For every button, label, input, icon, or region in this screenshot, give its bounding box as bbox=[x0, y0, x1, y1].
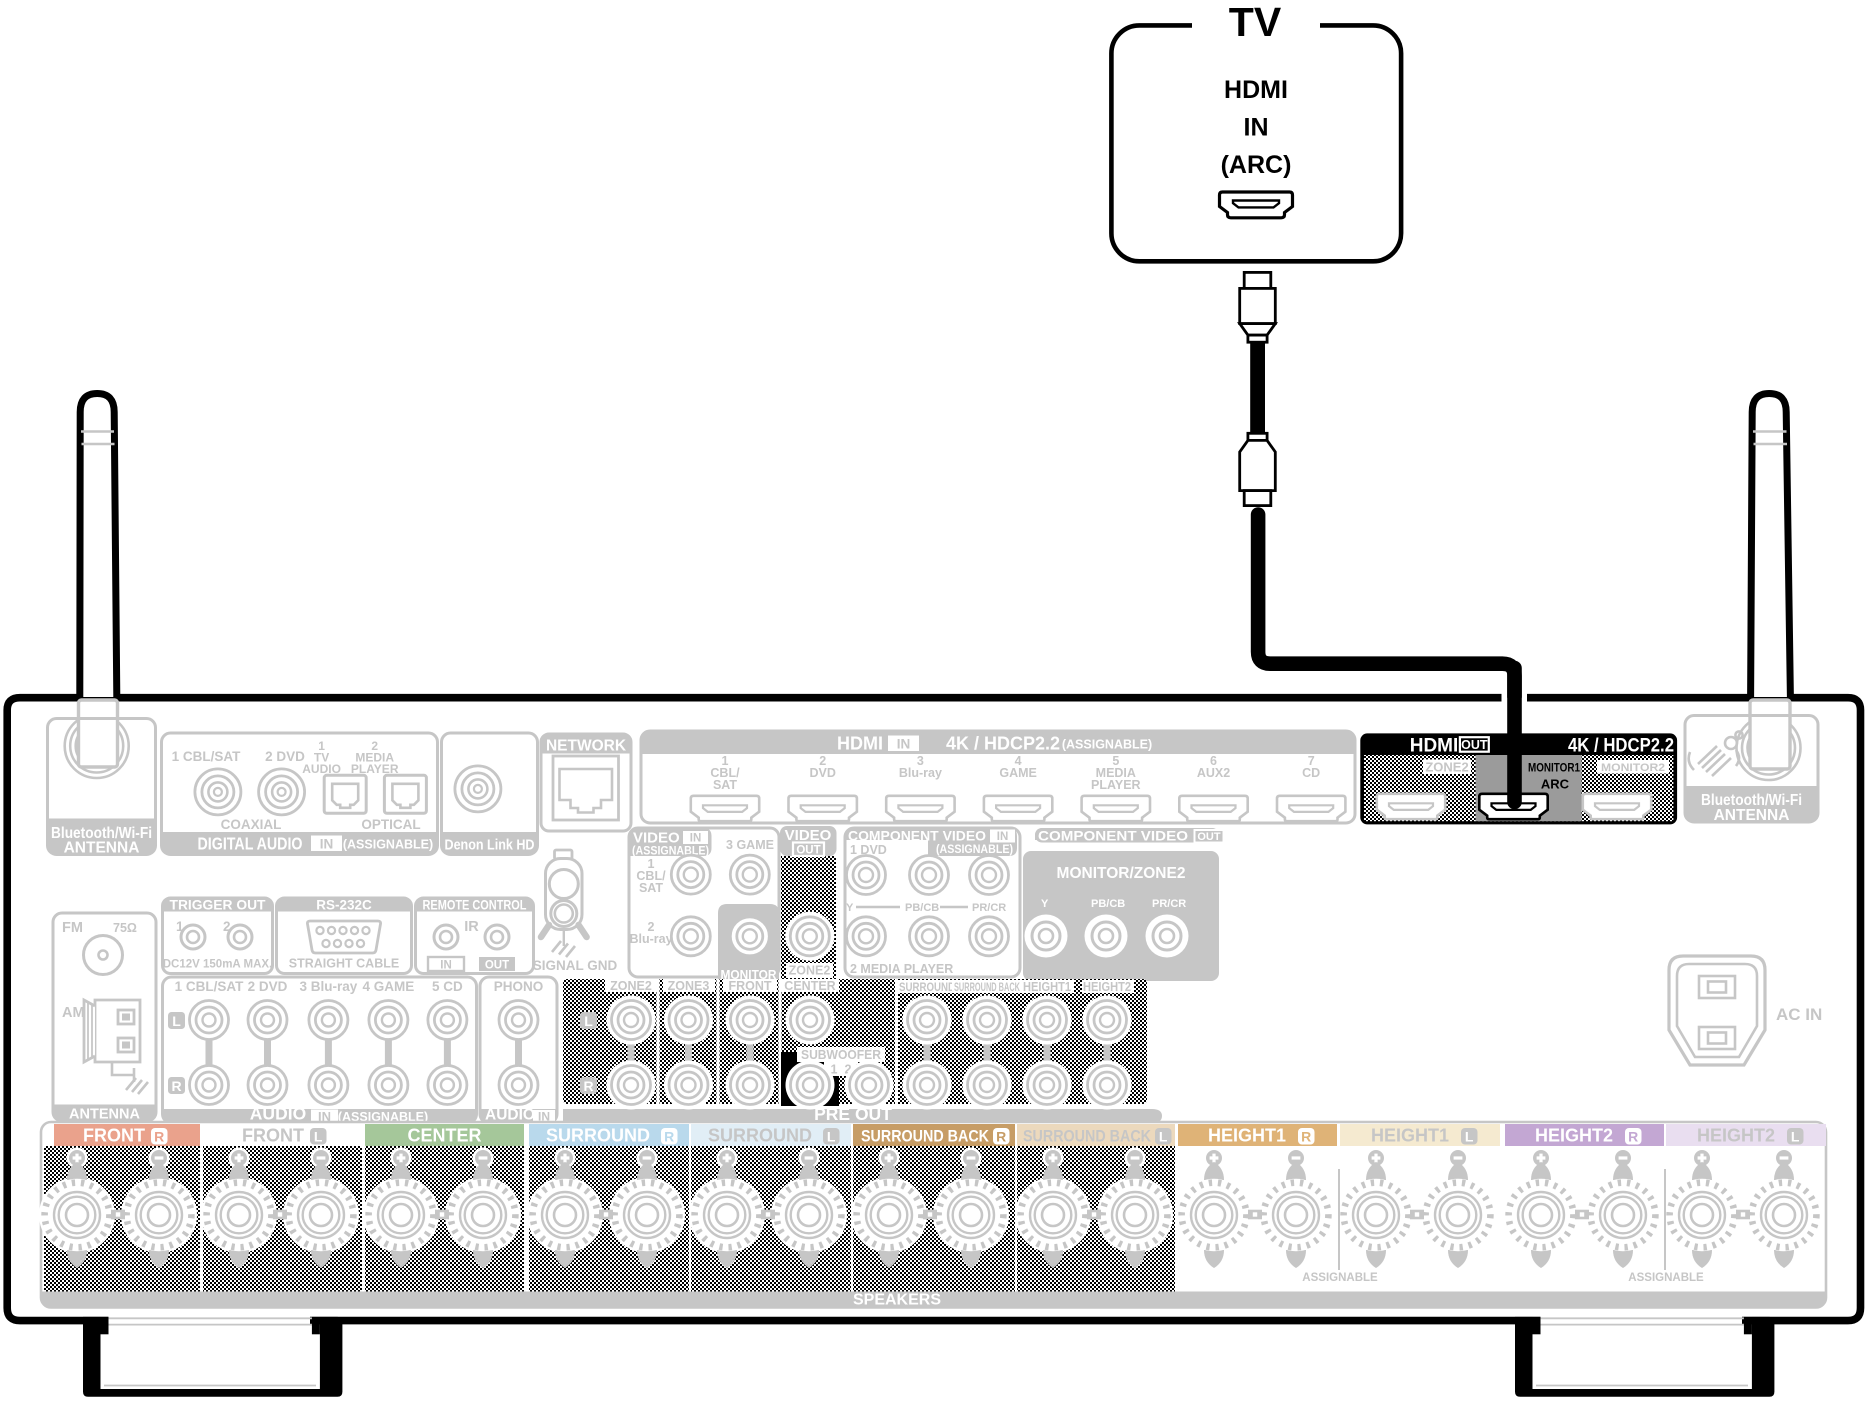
svg-text:HEIGHT2: HEIGHT2 bbox=[1535, 1126, 1613, 1146]
svg-text:R: R bbox=[1628, 1129, 1638, 1145]
svg-text:Blu-ray: Blu-ray bbox=[899, 766, 942, 780]
svg-text:FRONT: FRONT bbox=[242, 1126, 304, 1146]
svg-text:PB/CB: PB/CB bbox=[1091, 898, 1125, 910]
svg-text:ANTENNA: ANTENNA bbox=[1714, 807, 1790, 824]
svg-text:3 GAME: 3 GAME bbox=[726, 838, 774, 852]
svg-text:OUT: OUT bbox=[1461, 738, 1488, 752]
svg-text:HEIGHT1: HEIGHT1 bbox=[1023, 980, 1071, 994]
svg-text:L: L bbox=[314, 1129, 323, 1145]
svg-text:(ARC): (ARC) bbox=[1221, 151, 1292, 179]
svg-text:DIGITAL AUDIO: DIGITAL AUDIO bbox=[198, 834, 303, 854]
svg-text:ZONE2: ZONE2 bbox=[1425, 760, 1468, 775]
svg-text:COMPONENT VIDEO: COMPONENT VIDEO bbox=[848, 828, 986, 844]
svg-text:VIDEO: VIDEO bbox=[633, 830, 680, 847]
svg-text:IR: IR bbox=[464, 919, 479, 935]
svg-text:OUT: OUT bbox=[485, 960, 509, 972]
svg-text:Blu-ray: Blu-ray bbox=[629, 932, 672, 946]
svg-text:MONITOR/ZONE2: MONITOR/ZONE2 bbox=[1057, 865, 1186, 882]
svg-text:R: R bbox=[583, 1078, 593, 1094]
svg-text:IN: IN bbox=[1244, 114, 1269, 142]
svg-text:2 DVD: 2 DVD bbox=[265, 749, 305, 764]
svg-text:L: L bbox=[1159, 1129, 1168, 1145]
svg-text:COAXIAL: COAXIAL bbox=[221, 817, 282, 832]
svg-text:R: R bbox=[664, 1129, 674, 1145]
svg-text:PR/CR: PR/CR bbox=[1152, 898, 1186, 910]
svg-text:SPEAKERS: SPEAKERS bbox=[853, 1292, 941, 1309]
svg-text:IN: IN bbox=[440, 960, 452, 972]
svg-text:IN: IN bbox=[320, 837, 334, 852]
svg-text:4K / HDCP2.2: 4K / HDCP2.2 bbox=[1568, 736, 1674, 757]
svg-text:R: R bbox=[154, 1129, 164, 1145]
svg-text:SURROUND BACK: SURROUND BACK bbox=[954, 982, 1020, 994]
svg-text:COMPONENT VIDEO: COMPONENT VIDEO bbox=[1038, 828, 1188, 844]
svg-text:FRONT: FRONT bbox=[83, 1126, 145, 1146]
svg-text:SURROUND BACK: SURROUND BACK bbox=[861, 1128, 989, 1146]
svg-text:1 CBL/SAT: 1 CBL/SAT bbox=[175, 979, 245, 994]
svg-text:GAME: GAME bbox=[999, 766, 1037, 780]
svg-text:PR/CR: PR/CR bbox=[972, 902, 1006, 914]
svg-text:L: L bbox=[1465, 1129, 1474, 1145]
svg-text:75Ω: 75Ω bbox=[113, 921, 137, 935]
svg-text:CENTER: CENTER bbox=[784, 979, 835, 993]
svg-text:FM: FM bbox=[62, 920, 83, 936]
svg-text:3 Blu-ray: 3 Blu-ray bbox=[300, 979, 358, 994]
svg-text:TV: TV bbox=[1229, 0, 1282, 45]
svg-text:TRIGGER OUT: TRIGGER OUT bbox=[170, 898, 267, 913]
svg-text:SURROUND BACK: SURROUND BACK bbox=[1023, 1128, 1151, 1146]
svg-text:R: R bbox=[171, 1078, 181, 1094]
svg-text:(ASSIGNABLE): (ASSIGNABLE) bbox=[1062, 738, 1152, 752]
svg-text:SIGNAL GND: SIGNAL GND bbox=[533, 958, 618, 973]
svg-text:ASSIGNABLE: ASSIGNABLE bbox=[1302, 1272, 1378, 1284]
svg-text:AC IN: AC IN bbox=[1776, 1005, 1822, 1024]
svg-text:L: L bbox=[172, 1013, 181, 1029]
svg-text:SURROUND: SURROUND bbox=[546, 1126, 650, 1146]
svg-text:CD: CD bbox=[1302, 766, 1320, 780]
svg-text:(ASSIGNABLE): (ASSIGNABLE) bbox=[343, 838, 433, 852]
svg-text:HEIGHT2: HEIGHT2 bbox=[1697, 1126, 1775, 1146]
svg-text:ARC: ARC bbox=[1541, 777, 1570, 792]
svg-text:2 DVD: 2 DVD bbox=[248, 979, 288, 994]
svg-text:IN: IN bbox=[897, 737, 911, 752]
svg-text:REMOTE CONTROL: REMOTE CONTROL bbox=[423, 898, 527, 913]
svg-text:PLAYER: PLAYER bbox=[1091, 778, 1141, 792]
svg-text:L: L bbox=[584, 1013, 593, 1029]
svg-text:SAT: SAT bbox=[639, 881, 663, 895]
svg-text:HDMI: HDMI bbox=[1224, 76, 1288, 104]
svg-text:L: L bbox=[1791, 1129, 1800, 1145]
svg-text:SURROUND: SURROUND bbox=[899, 982, 955, 994]
svg-text:ZONE2: ZONE2 bbox=[610, 979, 652, 993]
svg-text:RS-232C: RS-232C bbox=[316, 898, 372, 913]
svg-text:MONITOR1: MONITOR1 bbox=[1528, 763, 1581, 775]
svg-text:(ASSIGNABLE): (ASSIGNABLE) bbox=[936, 844, 1013, 856]
svg-text:Y: Y bbox=[1041, 898, 1049, 910]
svg-text:Denon Link HD: Denon Link HD bbox=[445, 838, 535, 854]
svg-text:CENTER: CENTER bbox=[407, 1126, 481, 1146]
svg-text:ASSIGNABLE: ASSIGNABLE bbox=[1628, 1272, 1704, 1284]
svg-text:ZONE2: ZONE2 bbox=[789, 964, 831, 978]
svg-text:MONITOR2: MONITOR2 bbox=[1601, 762, 1665, 774]
svg-text:AUDIO: AUDIO bbox=[250, 1104, 306, 1124]
svg-text:1 CBL/SAT: 1 CBL/SAT bbox=[172, 749, 242, 764]
svg-text:Y: Y bbox=[846, 902, 854, 914]
svg-text:HDMI: HDMI bbox=[1410, 736, 1459, 757]
svg-text:HEIGHT1: HEIGHT1 bbox=[1208, 1126, 1286, 1146]
svg-text:HEIGHT1: HEIGHT1 bbox=[1371, 1126, 1449, 1146]
svg-text:IN: IN bbox=[997, 831, 1009, 843]
svg-text:SAT: SAT bbox=[713, 778, 737, 792]
svg-text:STRAIGHT CABLE: STRAIGHT CABLE bbox=[289, 957, 399, 971]
svg-text:SUBWOOFER: SUBWOOFER bbox=[801, 1048, 881, 1062]
svg-text:5 CD: 5 CD bbox=[432, 979, 463, 994]
svg-text:AUX2: AUX2 bbox=[1197, 766, 1230, 780]
svg-text:IN: IN bbox=[690, 833, 702, 845]
svg-text:DVD: DVD bbox=[809, 766, 835, 780]
svg-text:4 GAME: 4 GAME bbox=[363, 979, 415, 994]
svg-text:HEIGHT2: HEIGHT2 bbox=[1083, 980, 1131, 994]
svg-text:ZONE3: ZONE3 bbox=[668, 979, 710, 993]
svg-text:DC12V 150mA MAX.: DC12V 150mA MAX. bbox=[163, 959, 273, 971]
svg-text:OUT: OUT bbox=[796, 845, 820, 857]
svg-text:2 MEDIA PLAYER: 2 MEDIA PLAYER bbox=[850, 962, 953, 976]
svg-text:PHONO: PHONO bbox=[494, 979, 544, 994]
svg-text:SURROUND: SURROUND bbox=[708, 1126, 812, 1146]
svg-text:R: R bbox=[1301, 1129, 1311, 1145]
svg-text:PB/CB: PB/CB bbox=[905, 902, 939, 914]
svg-text:ANTENNA: ANTENNA bbox=[64, 840, 140, 857]
svg-text:R: R bbox=[996, 1129, 1006, 1145]
svg-text:AM: AM bbox=[62, 1005, 85, 1021]
svg-text:OUT: OUT bbox=[1197, 831, 1221, 843]
svg-text:HDMI: HDMI bbox=[837, 734, 883, 754]
svg-text:NETWORK: NETWORK bbox=[546, 738, 626, 755]
svg-text:L: L bbox=[827, 1129, 836, 1145]
svg-text:FRONT: FRONT bbox=[728, 979, 771, 993]
svg-text:OPTICAL: OPTICAL bbox=[361, 817, 420, 832]
svg-text:4K / HDCP2.2: 4K / HDCP2.2 bbox=[946, 734, 1060, 754]
svg-text:ANTENNA: ANTENNA bbox=[69, 1107, 140, 1123]
